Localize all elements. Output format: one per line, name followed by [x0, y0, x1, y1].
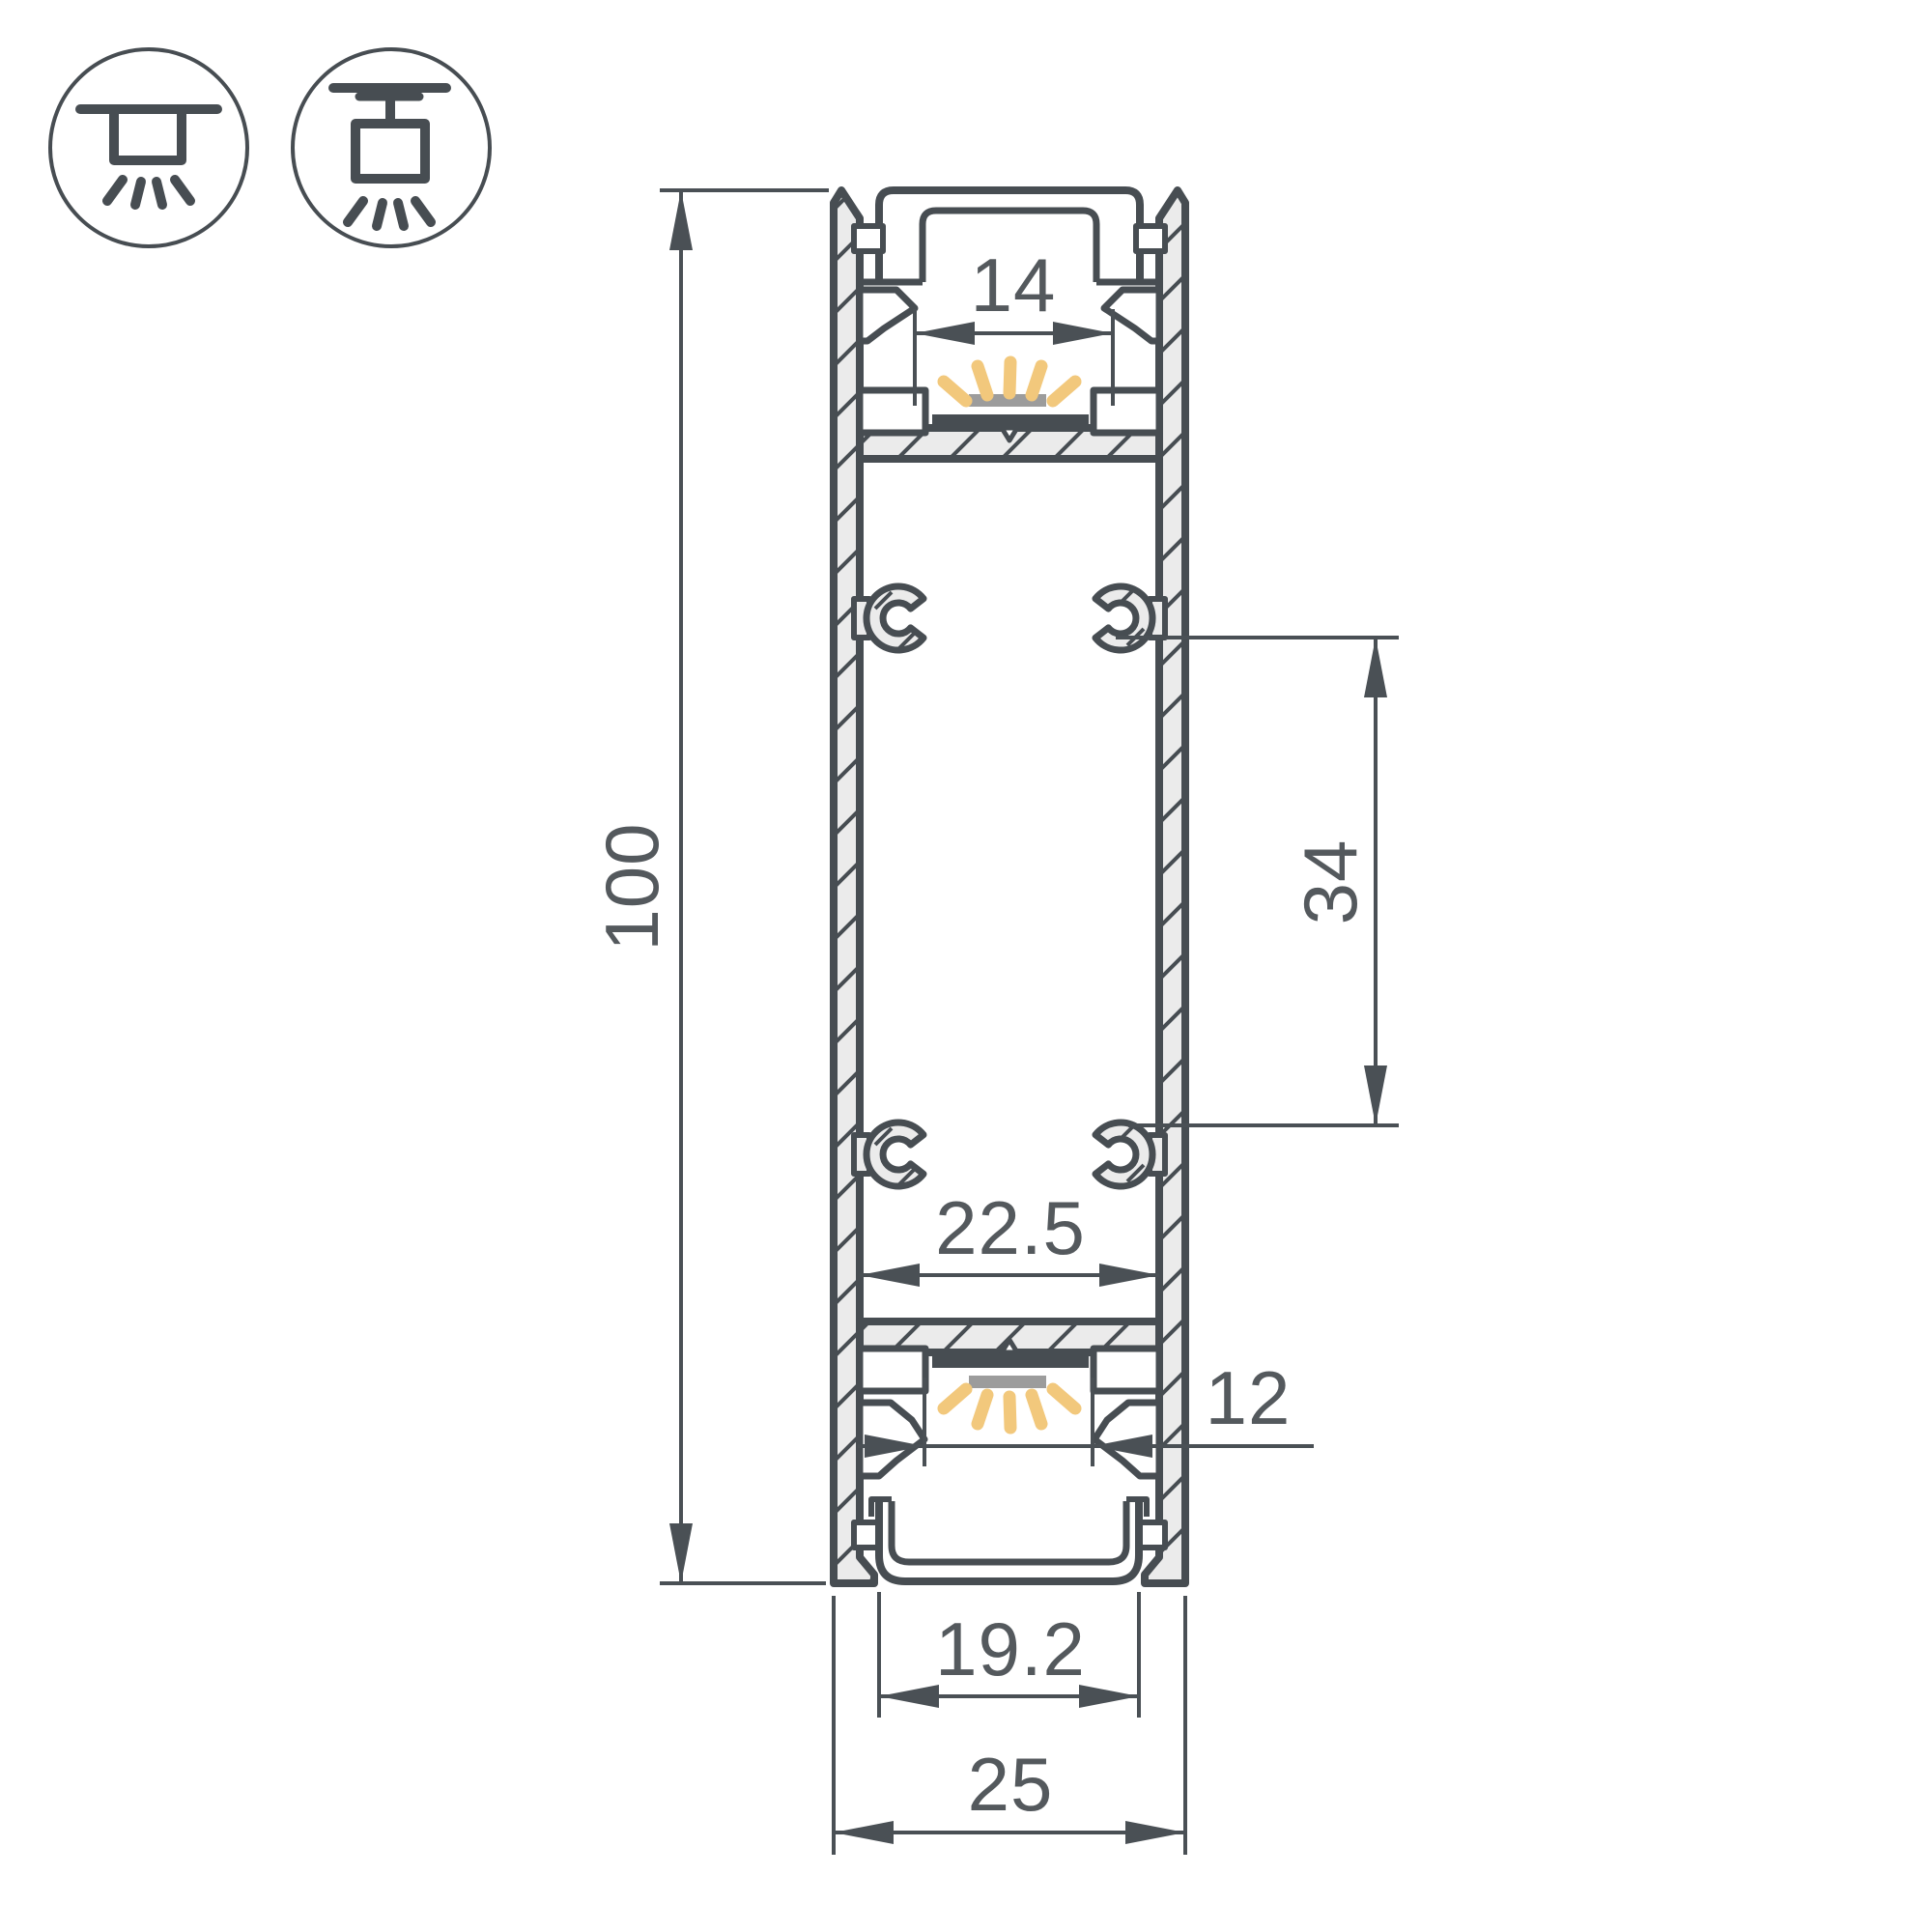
screw-port-upper-left [867, 586, 923, 650]
arrowhead [1125, 1821, 1185, 1844]
arrowhead [669, 1523, 693, 1583]
cover-hook-groove-right [1136, 226, 1165, 251]
dimension-label: 19.2 [935, 1606, 1086, 1691]
dimension-label: 25 [968, 1742, 1054, 1827]
icon-circle [50, 49, 247, 246]
dimension-label: 14 [971, 242, 1057, 327]
light-rays-icon [348, 201, 431, 226]
arrowhead [860, 1264, 920, 1287]
recessed-mount-icon [50, 49, 247, 246]
led-diffuser-lower [969, 1376, 1046, 1388]
led-pcb-upper [932, 414, 1089, 428]
screw-port-lower-left [867, 1122, 923, 1186]
dimension-label: 100 [589, 822, 674, 951]
light-glow-upper [944, 362, 1075, 401]
cover-hook-groove-left [854, 226, 883, 251]
fixture-box [114, 109, 182, 160]
arrowhead [669, 190, 693, 250]
arrowhead [1099, 1264, 1159, 1287]
led-pcb-lower [932, 1354, 1089, 1368]
bottom-cover-outer [879, 1501, 1139, 1581]
profile-cross-section [834, 190, 1185, 1583]
pcb-shoulder-lower-right [1094, 1349, 1159, 1391]
light-rays-icon [107, 180, 190, 205]
dimension-inner-width: 22.5 [860, 1185, 1159, 1287]
arrowhead [1364, 638, 1387, 697]
dimension-label: 22.5 [935, 1185, 1086, 1270]
screw-port-lower-right [1095, 1122, 1152, 1186]
light-glow-lower [944, 1389, 1075, 1428]
screw-ports [854, 586, 1165, 1186]
pcb-shoulder-lower-left [860, 1349, 925, 1391]
profile-drawing: 100 14 34 22.5 [0, 0, 1932, 1932]
dimension-height: 100 [589, 190, 829, 1583]
dimension-label: 34 [1288, 839, 1373, 925]
arrowhead [834, 1821, 894, 1844]
dimension-label: 12 [1206, 1355, 1292, 1440]
arrowhead [1364, 1065, 1387, 1125]
dimension-cover-width: 19.2 [879, 1592, 1139, 1718]
drawing-canvas: 100 14 34 22.5 [0, 0, 1932, 1932]
arrowhead [1053, 322, 1113, 345]
arrowhead [915, 322, 975, 345]
mount-icons [50, 49, 490, 246]
pcb-shoulder-upper-right [1094, 390, 1159, 433]
icon-circle [293, 49, 490, 246]
screw-port-upper-right [1095, 586, 1152, 650]
fixture-box [355, 124, 425, 179]
arrowhead [879, 1685, 939, 1708]
surface-mount-icon [293, 49, 490, 246]
arrowhead [1079, 1685, 1139, 1708]
retaining-tooth-upper-left [860, 290, 915, 341]
port-hatch-lines [875, 587, 1144, 1186]
